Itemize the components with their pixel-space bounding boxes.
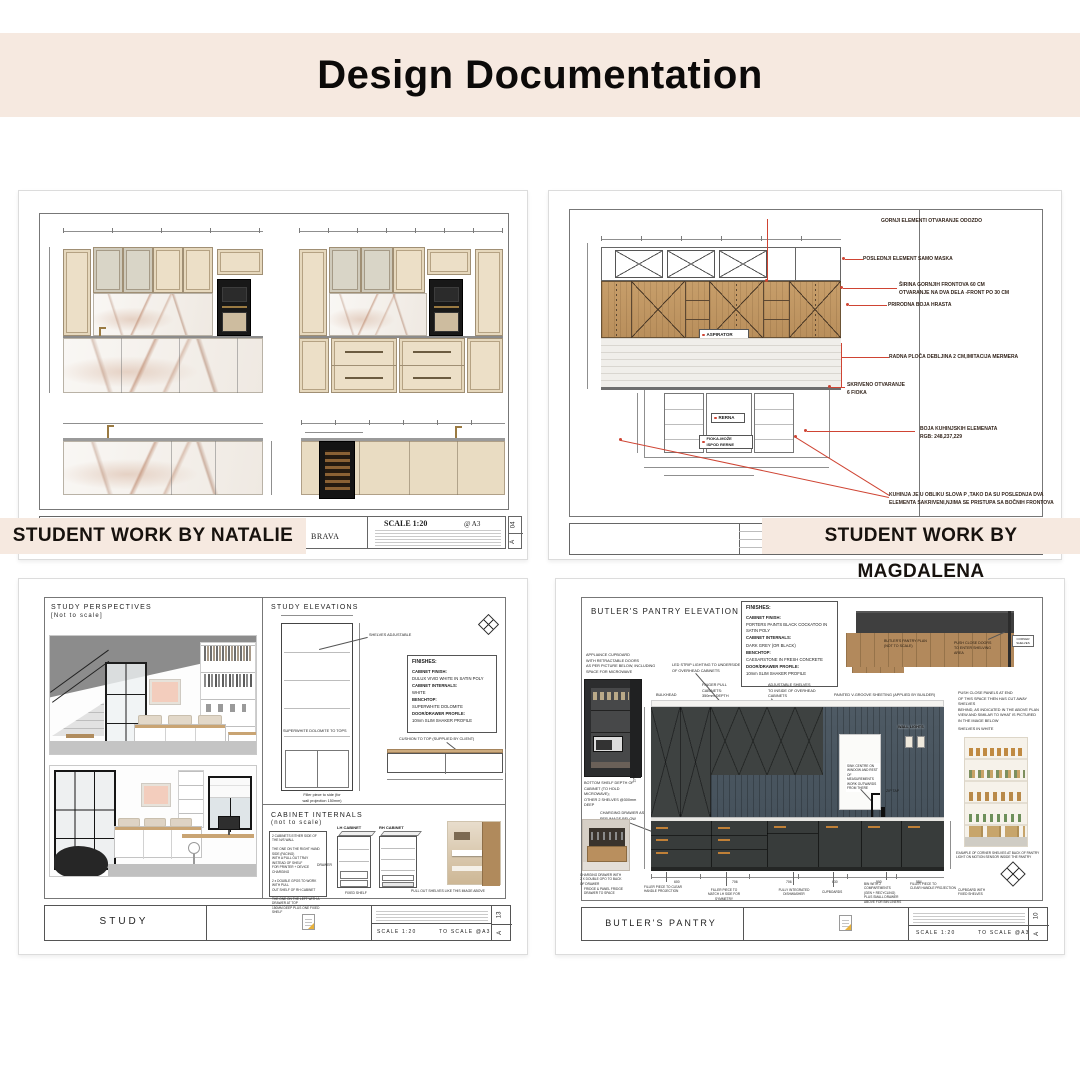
tall-cabinet-elevation [281,623,353,791]
plan-push-label: PUSH CLOSE DOORS TO ENTER SHELVING AREA [954,641,991,657]
finishes-lines: CABINET FINISH: DULUX VIVID WHITE IN SAT… [412,669,492,725]
leader-line [666,872,667,882]
pantry-photo [964,737,1028,847]
open-shelf-unit [754,393,794,453]
plan-corner-label: CORNER SHELVES [1012,635,1034,647]
desk [182,834,254,838]
title-block-divider [743,907,744,941]
window-seat [114,826,202,858]
sheet-number: 13 [496,912,504,919]
overhead-door-x [711,707,739,775]
cushion [170,818,192,827]
door-divider [763,281,764,338]
sheet-letter: A [510,540,518,544]
fixed-shelf-label: FIXED SHELF [345,891,367,896]
oven-text: RERNA [719,415,735,421]
overhead-door-x [795,707,823,775]
leader-dot-icon [702,441,705,444]
drawer-handle [908,826,920,828]
dim-line [271,441,272,495]
dim-ticks [601,236,841,241]
cushion [138,715,162,725]
sheet-letter: A [497,931,505,935]
push-close-note: PUSH CLOSE PANELS AT END OF THIS SPACE T… [958,691,1044,724]
perspective-render-1 [49,635,257,755]
perspectives-title: STUDY PERSPECTIVES [51,603,152,612]
cabinet-door [393,247,425,293]
lh-cabinet-top [338,831,376,836]
dim-line [505,749,506,773]
drawer-handle [413,351,451,353]
filler-label: FILLER PIECE TO MATCH LH SIDE FOR SYMMET… [702,888,746,901]
sheet-number-box: 04 A [508,516,522,549]
cabinet-door [153,247,183,293]
tall-cabinet-door [299,249,327,336]
glass-cabinet-door [361,247,393,293]
annotation: RADNA PLOČA DEBLJINA 2 CM,IMITACIJA MERM… [889,353,1018,361]
dim-line [49,247,50,393]
leader-line [726,872,727,886]
annotation: SKRIVENO OTVARANJE 6 FIOKA [847,381,905,397]
marble-splashback [329,293,427,336]
shelves-note: SHELVES ADJUSTABLE [369,633,411,639]
pantry-floor [965,837,1027,846]
pantry-items [969,770,1025,778]
panel-joint [121,338,122,393]
counter-line [601,387,841,390]
sheet-pantry: BUTLER'S PANTRY ELEVATION FINISHES: CABI… [555,578,1065,955]
tap-spout [455,426,462,428]
header-band: Design Documentation [0,33,1080,117]
badge-natalie: STUDENT WORK BY NATALIE [0,518,306,554]
drawer-handle [718,852,730,854]
marble-island-front [63,441,263,495]
leader-line [841,343,842,388]
sheet-letter: A [1034,932,1042,936]
sheet-number-box: 13 A [491,905,511,941]
leader-line [845,259,863,260]
glass-door-x [719,250,767,278]
tap-icon [871,793,873,817]
elevations-title: STUDY ELEVATIONS [271,603,359,612]
dim-value: 706 [786,880,792,885]
sheet-number-box: 10 A [1028,907,1048,941]
leader-line [886,872,887,880]
cushion [118,818,140,827]
wall-light-icon [905,736,913,748]
zip-tap-label: ZIP TAP [886,789,899,794]
dim-line [387,779,503,780]
panel-joint [171,441,172,495]
oven-stack [429,279,463,336]
dim-line [281,615,353,616]
cabinet-door [183,247,213,293]
studio-logo-icon [302,914,315,930]
dishwasher-label: FULLY INTEGRATED DISHWASHER [772,888,816,897]
tall-cabinet-door [475,249,503,336]
badge-magdalena-label: STUDENT WORK BY MAGDALENA [762,518,1080,590]
annotation: PRIRODNA BOJA HRASTA [888,301,951,309]
disclaimer-text-block [376,909,488,921]
sheet-title: STUDY [59,916,189,927]
badge-magdalena: STUDENT WORK BY MAGDALENA [762,518,1080,554]
shelves-white-note: SHELVES IN WHITE [958,727,993,733]
bin-label: BIN WITH 2 COMPARTMENTS (GEN + RECYCLING… [864,882,908,904]
sheet-study: STUDY PERSPECTIVES [Not to scale] [18,578,528,955]
dim-line [359,623,360,791]
drawer-line [763,300,789,301]
pantry-items [969,792,1025,801]
bench-body [387,753,503,773]
drawer-handle [656,839,668,841]
fixed-shelves-label: CUPBOARD WITH FIXED SHELVES [958,888,1008,897]
drawer-line [763,319,789,320]
glass-cabinet-door [329,247,361,293]
floor-carpet [50,741,256,754]
badge-natalie-label: STUDENT WORK BY NATALIE [0,518,306,554]
scale-label: SCALE 1:20 [916,930,956,938]
oven-door [434,312,459,332]
plan-cabinet-band [856,611,1014,633]
leader-line [807,431,915,432]
plan-end-panel [1008,611,1011,667]
glass-door-x [615,250,663,278]
floor-carpet [108,864,257,876]
wine-bottles [325,450,350,490]
dim-line [63,423,263,424]
frame-divider [262,597,263,899]
dim-line [644,467,829,468]
drawer-handle [718,827,730,829]
row-divider [795,247,796,281]
drawer-handle [345,377,383,379]
glass-cabinet-door [93,247,123,293]
lh-cabinet-label: LH CABINET [337,825,361,831]
hinge-dashed-line [815,283,816,336]
monitor [218,816,240,830]
cabinet-photo [447,821,501,885]
annotation: GORNJI ELEMENTI OTVARANJE ODOZDO [881,217,982,225]
overhead-cabinet [427,249,471,275]
tall-cabinet [681,707,711,817]
desk-chair [188,842,200,854]
oak-door-x [631,281,685,338]
leader-dot-icon [842,257,845,260]
leader-line [833,872,834,887]
vgroove-label: PAINTED V-GROOVE SHEETING (APPLIED BY BU… [834,693,935,699]
bench [66,734,94,738]
drawer-handle [345,351,383,353]
panel-joint [409,441,410,495]
leader-line [831,387,845,388]
annotation: POSLEDNJI ELEMENT SAMO MASKA [863,255,953,263]
overhead-cabinet [217,249,263,275]
scale-label: SCALE 1:20 [377,929,417,937]
panel-joint [237,338,238,393]
shelf-objects [206,704,246,712]
sheet-title: BUTLER'S PANTRY [586,918,736,928]
unit-line [829,390,830,457]
tall-cabinet [651,707,681,817]
pantry-photo-caption: EXAMPLE OF CORNER SHELVES AT BACK OF PAN… [956,851,1044,860]
rh-cabinet-label: RH CABINET [379,825,404,831]
pantry-items [969,748,1025,756]
studio-logo-icon [839,915,852,931]
base-door [299,338,329,393]
internals-subtitle: (not to scale) [271,820,322,828]
kickboard [651,867,944,871]
leader-dot-icon [846,303,849,306]
dim-line [644,707,645,869]
cushion [198,715,222,725]
dim-ticks [299,228,503,233]
title-block-row [739,547,763,548]
artwork [150,680,180,704]
drawer-handle [413,377,451,379]
leader-line [843,288,897,289]
unit-line [644,390,645,457]
filler-note: Filler piece to side (for wall projectio… [287,793,357,804]
bottle-icon [881,807,885,817]
cupboards-label: CUPBOARDS [822,890,842,894]
books-row [204,646,252,661]
cushion [168,715,192,725]
hinge-dashed-line [616,283,617,336]
panel-joint [179,338,180,393]
finishes-title: FINISHES: [412,659,492,667]
charging-caption: CHARGING DRAWER WITH 2 X DOUBLE GPO TO B… [580,873,640,886]
cushion-note: CUSHION TO TOP (SUPPLIED BY CLIENT) [399,737,474,743]
tall-cabinet-door [63,249,91,336]
microwave [593,736,623,752]
oven-label: RERNA [711,413,745,423]
finishes-box: FINISHES: CABINET FINISH: PORTERS PAINTS… [741,601,838,687]
open-shelf-unit [664,393,704,453]
leader-line [767,219,768,281]
title-block-row [739,531,763,532]
drawer-handle [774,826,786,828]
door-divider [685,281,686,338]
title-block-divider [206,905,207,941]
sink-note: SINK CENTRE ON WINDOW AND REST OF MEASUR… [846,763,880,792]
perspectives-subtitle: [Not to scale] [51,613,103,621]
leader-dot-icon [714,417,717,420]
appliance-photo [584,679,642,777]
brick-splashback [601,338,841,387]
bulkhead-band [651,700,944,707]
jars-row [593,692,629,700]
revision-rows [375,530,501,546]
dim-value: 706 [732,880,738,885]
height-dim: 2700 [632,773,638,782]
drawer-handle [826,826,838,828]
charging-drawer-photo [582,819,630,871]
chair-base [193,854,195,864]
frame-divider [262,804,506,805]
leader-dot-icon [702,334,705,337]
drawer-divider [399,365,465,366]
wall-lights-label: WALL LIGHTS [898,725,924,731]
sheet-natalie: SCALE 1:20 @ A3 BRAVA 04 A [18,190,528,560]
pullout-caption: PULL OUT SHELVES LIKE THIS IMAGE ABOVE [411,889,503,894]
bottom-shelf-note: BOTTOM SHELF DEPTH OF CABINET (TO HOLD M… [584,781,650,809]
drawer-text: FIOKA-MOŽE ISPOD RERNE [707,436,735,448]
annotation: ŠIRINA GORNJIH FRONTOVA 60 CM OTVARANJE … [899,281,1009,297]
title-block-divider [367,516,368,549]
title-block-row [739,539,763,540]
marble-splashback [93,293,213,336]
overhead-door-x [739,707,767,775]
finishes-title: FINISHES: [746,605,833,613]
annotation: KUHINJA JE U OBLIKU SLOVA P ,TAKO DA SU … [889,491,1054,507]
to-scale-label: TO SCALE @A3 [439,929,491,937]
drawer-handle [868,826,880,828]
glass-cabinet-door [123,247,153,293]
filler-label: FILLER PIECE TO CLEAR HANDLE PROJECTION [910,882,956,891]
wine-fridge [319,441,355,499]
pantry-items [969,814,1025,822]
books-row [204,674,252,687]
sheet-number: 04 [510,522,518,529]
tap-spout [107,425,114,427]
rh-cabinet-drawing [379,836,417,888]
drawer-divider [331,365,397,366]
panel-joint [359,441,360,495]
page-title: Design Documentation [0,33,1080,117]
benchtop-note: SUPERWHITE DOLOMITE TO TOPS [283,729,347,735]
drawer-line [685,300,709,301]
brass-trim [222,306,247,308]
panel-joint [457,441,458,495]
leader-dot-icon [619,438,622,441]
dim-line [664,475,754,476]
oven-stack [217,279,251,336]
microwave [222,287,247,302]
leader-dot-icon [794,435,797,438]
artwork [142,784,170,806]
drawer-handle [656,852,668,854]
microwave [434,287,459,302]
bean-chair [54,846,108,877]
base-door [467,338,503,393]
leader-dot-icon [840,286,843,289]
title-block-divider [908,925,1028,926]
plan-label: BUTLER'S PANTRY PLAN (NOT TO SCALE) [884,639,927,649]
bulkhead-label: BULKHEAD [656,693,676,699]
dim-ticks [651,874,944,879]
sheet-magdalena: ASPIRATOR RERNA FIOKA-MOŽE ISPOD R [548,190,1062,560]
title-block-divider [371,923,491,924]
plan-floor-step [852,667,904,673]
leader-dot-icon [804,429,807,432]
dim-line [305,432,363,433]
cushion [144,818,166,827]
disclaimer-text-block [913,911,1025,923]
leader-line [849,305,887,306]
unit-line [644,457,830,458]
leader-line [841,357,889,358]
annotation: BOJA KUHINJSKIH ELEMENATA RGB: 248,237,2… [920,425,997,441]
led-note: LED STRIP LIGHTING TO UNDERSIDE OF OVERH… [672,663,762,674]
overhead-door-x [767,707,795,775]
filler-label: FILLER PIECE TO CLEAR HANDLE PROJECTION [644,885,694,894]
oven-door [222,312,247,332]
monitor-stand [228,830,230,835]
drawer-label: FIOKA-MOŽE ISPOD RERNE [699,435,753,449]
leader-dot-icon [765,279,768,282]
paper-size-label: @ A3 [464,520,480,528]
sheet-number: 10 [1033,913,1041,920]
drawer-micro-label: DRAWER [317,863,332,868]
appliance-note: APPLIANCE CUPBOARD WITH RETRACTABLE DOOR… [586,653,656,675]
glass-door-x [667,250,715,278]
rh-cabinet-top [380,831,422,836]
finishes-box: FINISHES: CABINET FINISH: DULUX VIVID WH… [407,655,497,733]
lh-cabinet-drawing [337,836,371,888]
dim-ticks [301,420,505,425]
panel-joint [215,441,216,495]
brass-trim [434,306,459,308]
title-block-divider [908,907,909,941]
dim-ticks [63,228,263,233]
drawer-handle [718,839,730,841]
adjustable-label: ADJUSTABLE SHELVES TO INSIDE OF OVERHEAD… [768,683,816,700]
pantry-heading: BUTLER'S PANTRY ELEVATION [591,607,739,617]
marble-base-cabinets [63,338,263,393]
tap-spout [871,793,880,795]
tap-spout [99,327,106,329]
wall-light-icon [917,736,925,748]
leader-dot-icon [828,385,831,388]
dim-line [587,243,588,389]
fridge-note: FRIDGE & PANEL FRIDGE DRAWER TO SPACE [584,887,644,896]
scale-label: SCALE 1:20 [384,519,427,528]
sheet-number-divider [509,533,523,534]
perspective-render-2 [49,765,257,877]
internals-title: CABINET INTERNALS [271,811,363,820]
to-scale-label: TO SCALE @A3 [978,930,1030,938]
drawer-line [685,319,709,320]
dim-line [950,821,951,869]
cords [591,832,623,840]
project-name: BRAVA [311,532,339,541]
leader-line [793,872,794,885]
drawer-handle [656,827,668,829]
base-cabinets [651,821,944,869]
poster-canvas: Design Documentation [0,0,1080,1080]
